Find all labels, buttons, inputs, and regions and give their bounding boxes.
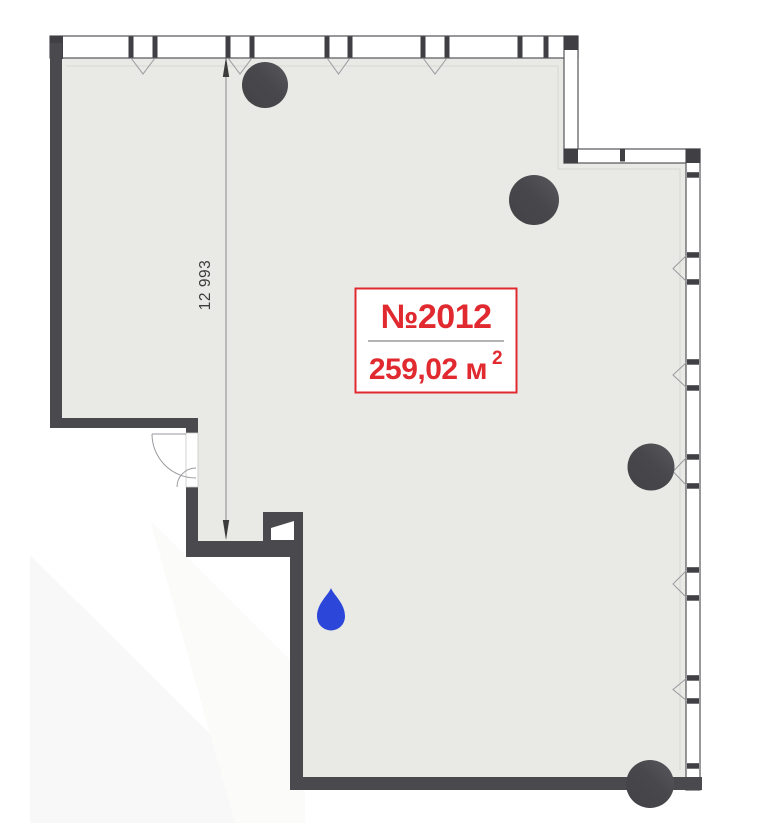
corner-block	[564, 36, 578, 50]
mullion-tick	[518, 37, 523, 58]
corner-block	[564, 149, 578, 163]
unit-area-superscript: 2	[492, 348, 503, 369]
column-icon	[242, 62, 288, 108]
wall-lower-vertical	[290, 543, 303, 783]
floor-plan-page: 12 993 №2012 259,02 м 2	[0, 0, 778, 823]
window-wall-right	[686, 149, 700, 790]
unit-info-badge: №2012 259,02 м 2	[356, 289, 517, 393]
column-icon	[509, 175, 559, 225]
mullion-tick	[620, 149, 625, 162]
mullion-tick	[687, 252, 699, 258]
mullion-tick	[129, 37, 134, 58]
mullion-tick	[250, 37, 255, 58]
mullion-tick	[687, 454, 699, 460]
wall-left	[50, 43, 62, 428]
corner-block	[686, 149, 700, 163]
column-icon	[628, 444, 675, 491]
window-wall-step-horizontal	[564, 149, 700, 163]
column-icon	[626, 760, 674, 808]
mullion-tick	[348, 37, 353, 58]
wall-interior-top	[50, 418, 198, 428]
dimension-label: 12 993	[197, 260, 214, 310]
mullion-tick	[687, 675, 699, 681]
wall-door-lower	[186, 487, 198, 543]
floor-plan-canvas: 12 993 №2012 259,02 м 2	[0, 0, 778, 823]
mullion-tick	[153, 37, 158, 58]
mullion-tick	[687, 698, 699, 704]
unit-area: 259,02 м	[369, 353, 487, 386]
mullion-tick	[687, 763, 699, 769]
door-opening	[186, 433, 198, 487]
mullion-tick	[544, 37, 549, 58]
mullion-tick	[687, 359, 699, 365]
wall-door-jamb	[186, 418, 198, 433]
mullion-tick	[226, 37, 231, 58]
mullion-tick	[687, 385, 699, 391]
mullion-tick	[325, 37, 330, 58]
mullion-tick	[687, 567, 699, 573]
mullion-tick	[687, 595, 699, 601]
mullion-tick	[687, 172, 699, 178]
mullion-tick	[687, 279, 699, 285]
mullion-tick	[687, 483, 699, 489]
unit-number: №2012	[380, 298, 491, 336]
mullion-tick	[421, 37, 426, 58]
window-wall-step-vertical	[564, 36, 578, 163]
mullion-tick	[445, 37, 450, 58]
wall-lower-horizontal	[186, 541, 303, 557]
